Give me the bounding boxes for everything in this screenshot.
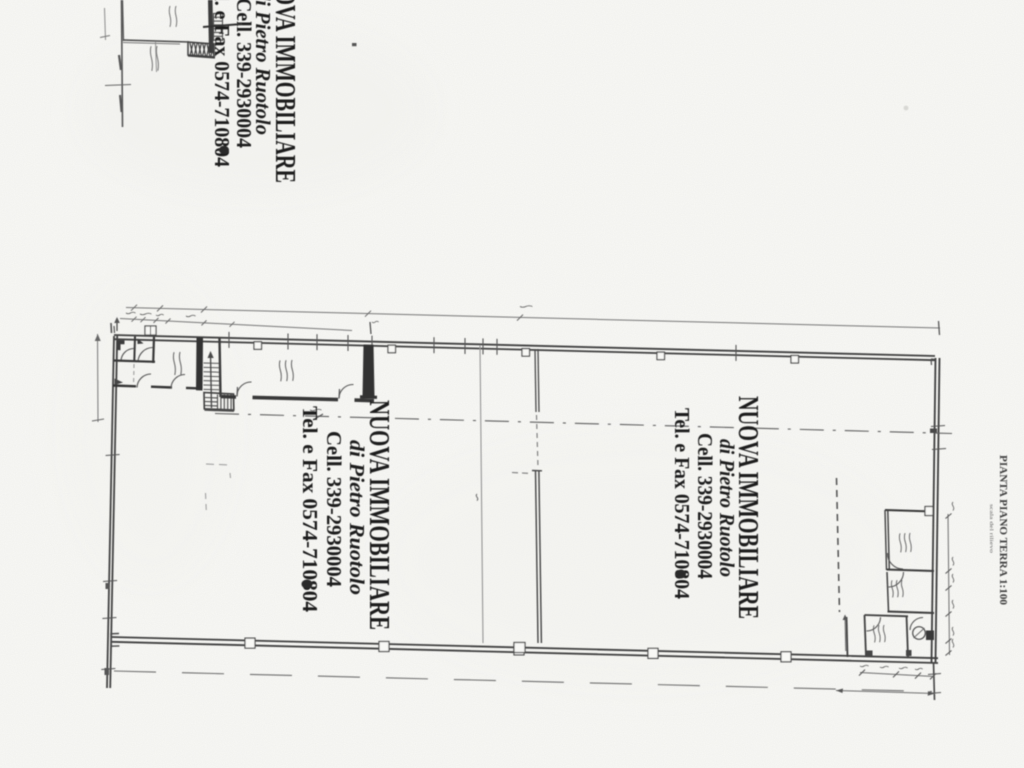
- svg-text:PIANTA PIANO TERRA 1:100: PIANTA PIANO TERRA 1:100: [997, 455, 1009, 605]
- svg-text:scala del rilievo: scala del rilievo: [988, 504, 994, 553]
- svg-text:Cell. 339-2930004: Cell. 339-2930004: [232, 0, 256, 148]
- svg-text:di Pietro Ruotolo: di Pietro Ruotolo: [345, 440, 369, 595]
- svg-text:Cell. 339-2930004: Cell. 339-2930004: [322, 431, 346, 587]
- svg-text:di Pietro Ruotolo: di Pietro Ruotolo: [715, 439, 739, 577]
- svg-text:Cell. 339-2930004: Cell. 339-2930004: [693, 433, 717, 579]
